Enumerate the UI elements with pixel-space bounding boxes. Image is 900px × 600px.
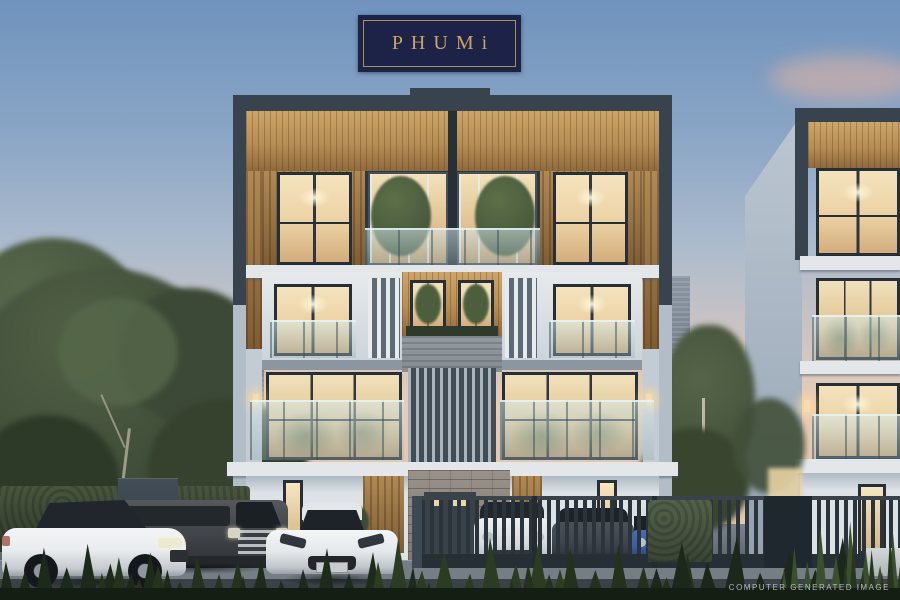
louver-screen: [408, 368, 496, 462]
wood-jamb-right: [643, 171, 659, 349]
glass-balustrade: [812, 414, 900, 460]
sedan-taillight: [2, 536, 10, 546]
roof-frame-side: [795, 108, 808, 260]
logo-text: PHUMi: [384, 32, 495, 55]
tree-highlight: [58, 298, 178, 406]
watermark-text: COMPUTER GENERATED IMAGE: [729, 583, 890, 592]
window-top-right: [553, 172, 628, 265]
roof-frame-right: [659, 95, 672, 305]
phumi-logo: PHUMi: [358, 15, 521, 72]
volume-shadow: [502, 360, 642, 370]
slat-screen-left: [368, 278, 400, 358]
logo-border: PHUMi: [363, 20, 516, 67]
window-tree: [415, 284, 441, 324]
roof-frame-left: [233, 95, 246, 305]
roof-frame-top: [233, 95, 672, 111]
glass-balustrade: [270, 320, 356, 358]
glass-balustrade: [549, 320, 635, 358]
glass-balustrade: [812, 315, 900, 361]
main-townhome-block: [233, 88, 672, 560]
license-plate: [316, 562, 348, 573]
concrete-band: [402, 336, 502, 372]
wood-jamb-left: [246, 171, 262, 349]
window-tree: [463, 284, 489, 324]
white-sedan: [2, 492, 192, 594]
volume-shadow: [262, 360, 402, 370]
wood-soffit: [808, 122, 900, 168]
fence-post: [412, 496, 422, 568]
floor-slab: [800, 256, 900, 270]
planter-box: [406, 326, 498, 336]
render-canvas: PHUMi COMPUTER GENERATED IMAGE: [0, 0, 900, 600]
floor-slab: [795, 459, 900, 473]
wall-sconce: [804, 400, 810, 412]
glass-balustrade: [250, 400, 404, 460]
sedan-headlight: [158, 538, 182, 548]
glass-balustrade: [500, 400, 654, 460]
slat-screen-right: [505, 278, 537, 358]
floor-slab: [800, 361, 900, 374]
sedan-grille: [170, 550, 188, 562]
window-top: [816, 168, 900, 256]
van-headlight: [228, 528, 240, 538]
window-top-left: [277, 172, 352, 265]
glass-balustrade: [365, 228, 540, 266]
roof-frame: [795, 108, 900, 122]
